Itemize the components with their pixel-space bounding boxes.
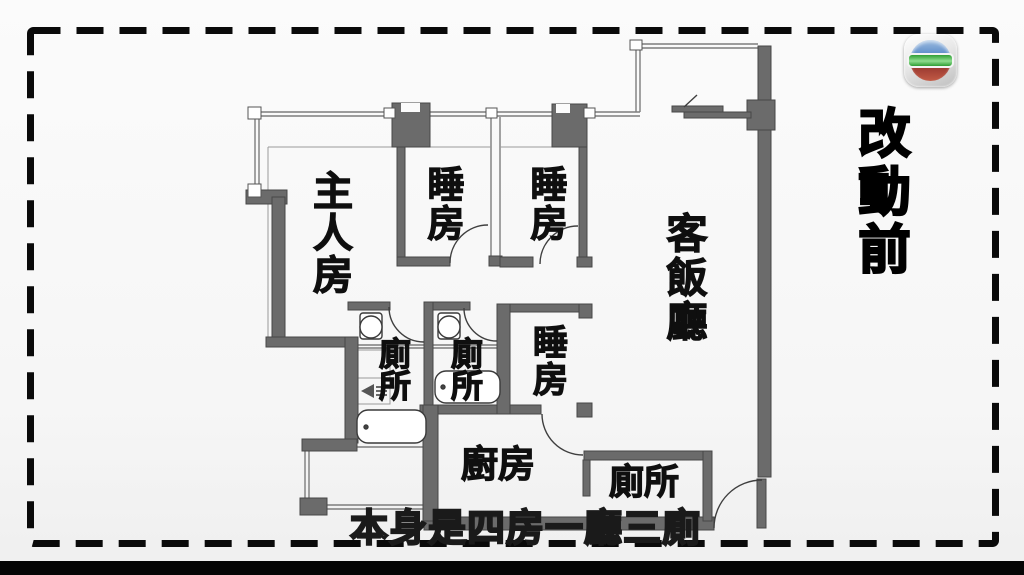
tv-frame: 主人房 睡房 睡房 客飯廳 睡房 廁所 廁所 廚房 廁所 改動前 本身是四房一廳…	[0, 0, 1024, 575]
door-leaf-upper-entry	[684, 95, 697, 107]
room-label-master-bedroom: 主人房	[309, 170, 349, 296]
room-label-toilet-2: 廁所	[449, 337, 481, 401]
door-arc-kitchen	[542, 414, 583, 455]
room-label-bedroom-2: 睡房	[527, 165, 564, 243]
floor-plan	[0, 0, 1024, 575]
room-label-living-dining: 客飯廳	[662, 212, 703, 344]
subtitle-caption: 本身是四房一廳三廁	[350, 497, 701, 552]
tvb-logo	[904, 34, 957, 87]
toilet-bowl-icon	[360, 316, 382, 338]
room-label-toilet-3: 廁所	[609, 465, 679, 500]
bathtub-drain-icon	[364, 425, 368, 429]
bathtub-drain-icon	[441, 385, 445, 389]
stage-label: 改動前	[853, 106, 905, 280]
room-label-toilet-1: 廁所	[377, 337, 409, 401]
door-arc-entry	[714, 480, 762, 528]
room-label-bedroom-3: 睡房	[530, 324, 565, 398]
shower-icon	[361, 384, 374, 398]
letterbox-bar	[0, 561, 1024, 575]
room-label-kitchen: 廚房	[461, 446, 535, 483]
toilet-bowl-icon	[438, 316, 460, 338]
room-label-bedroom-1: 睡房	[424, 165, 461, 243]
tvb-green-band-icon	[907, 53, 954, 68]
